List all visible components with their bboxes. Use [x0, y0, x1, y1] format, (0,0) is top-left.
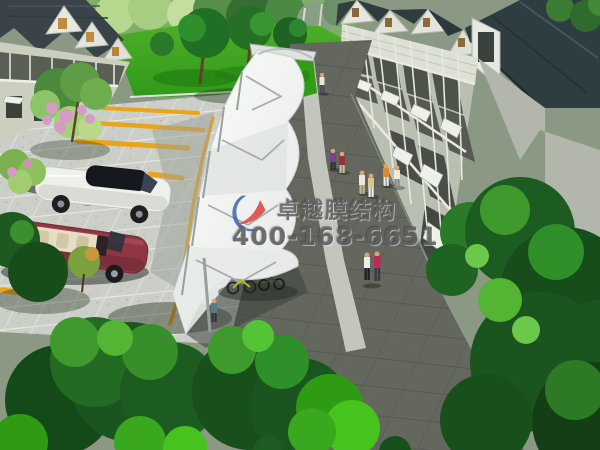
architectural-rendering: [0, 0, 600, 450]
